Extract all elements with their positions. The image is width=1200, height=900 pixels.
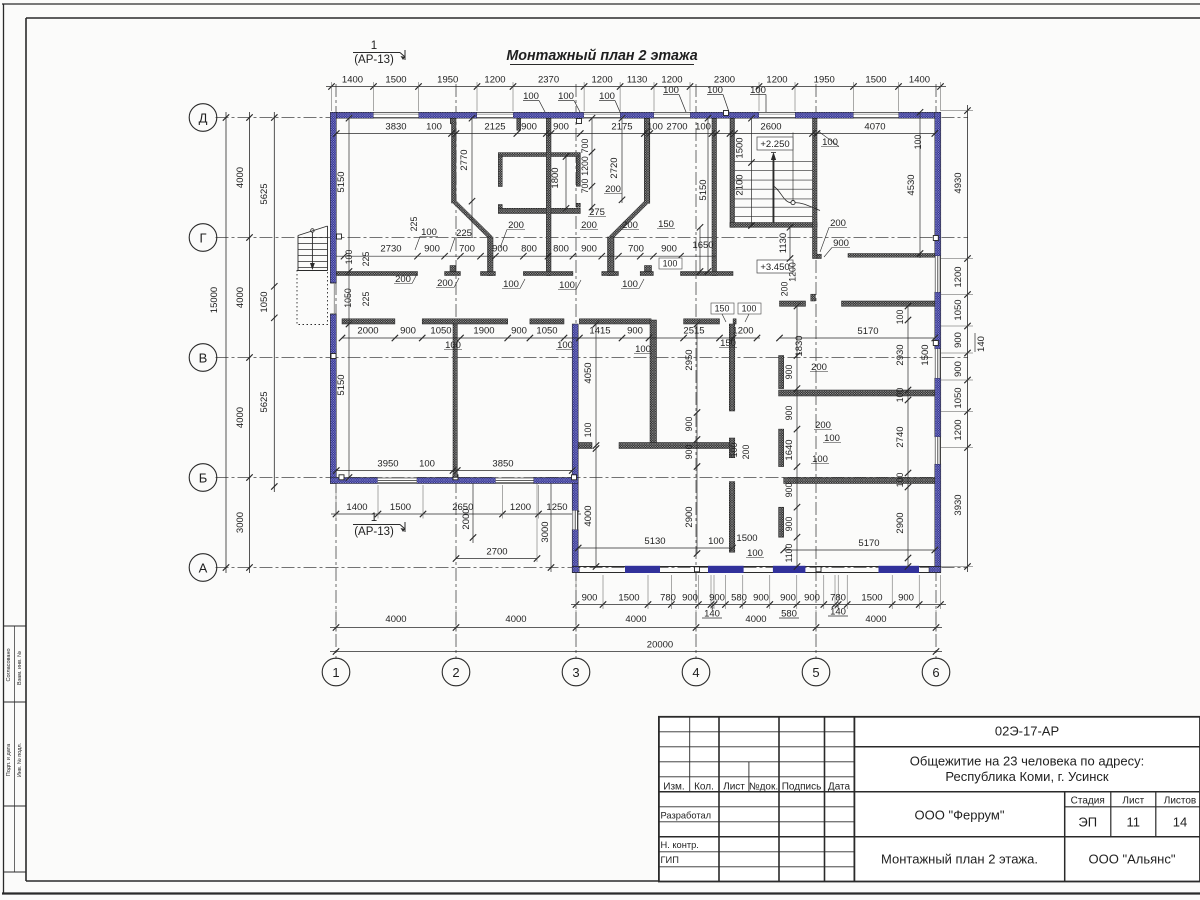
svg-text:3850: 3850 bbox=[492, 459, 513, 470]
svg-text:2125: 2125 bbox=[484, 122, 505, 133]
svg-text:900: 900 bbox=[627, 326, 643, 337]
svg-text:2720: 2720 bbox=[609, 157, 620, 178]
svg-text:2700: 2700 bbox=[666, 122, 687, 133]
svg-text:4000: 4000 bbox=[625, 614, 646, 625]
svg-text:1400: 1400 bbox=[346, 502, 367, 513]
svg-text:900: 900 bbox=[804, 593, 820, 604]
svg-text:2: 2 bbox=[452, 665, 459, 680]
svg-text:4050: 4050 bbox=[583, 362, 594, 383]
svg-text:20000: 20000 bbox=[647, 640, 673, 651]
svg-text:1800: 1800 bbox=[550, 167, 561, 188]
svg-text:100: 100 bbox=[647, 122, 663, 133]
svg-text:4000: 4000 bbox=[235, 167, 246, 188]
svg-text:15000: 15000 bbox=[209, 287, 220, 313]
svg-text:+3.450: +3.450 bbox=[760, 262, 789, 273]
svg-text:Инв. № подл.: Инв. № подл. bbox=[17, 742, 23, 777]
svg-text:2600: 2600 bbox=[760, 122, 781, 133]
svg-text:1500: 1500 bbox=[390, 502, 411, 513]
svg-text:+2.250: +2.250 bbox=[760, 139, 789, 150]
svg-text:1200: 1200 bbox=[484, 75, 505, 86]
svg-text:Общежитие на 23 человека по ад: Общежитие на 23 человека по адресу: bbox=[910, 754, 1144, 769]
svg-text:(АР-13): (АР-13) bbox=[354, 54, 394, 66]
svg-text:1500: 1500 bbox=[618, 593, 639, 604]
svg-text:4000: 4000 bbox=[235, 287, 246, 308]
svg-text:780: 780 bbox=[830, 593, 846, 604]
svg-text:900: 900 bbox=[582, 593, 598, 604]
svg-text:В: В bbox=[199, 350, 208, 365]
svg-text:Изм.: Изм. bbox=[663, 781, 684, 792]
svg-text:А: А bbox=[199, 560, 208, 575]
svg-text:2300: 2300 bbox=[714, 75, 735, 86]
svg-text:1500: 1500 bbox=[865, 75, 886, 86]
svg-text:ГИП: ГИП bbox=[661, 855, 679, 865]
svg-text:2100: 2100 bbox=[735, 174, 746, 195]
svg-text:1500: 1500 bbox=[861, 593, 882, 604]
svg-text:1050: 1050 bbox=[430, 326, 451, 337]
svg-text:700: 700 bbox=[580, 139, 590, 154]
svg-text:1200: 1200 bbox=[788, 262, 798, 282]
svg-text:700: 700 bbox=[628, 244, 644, 255]
svg-text:900: 900 bbox=[684, 445, 694, 460]
svg-text:900: 900 bbox=[684, 417, 694, 432]
svg-text:1200: 1200 bbox=[661, 75, 682, 86]
svg-text:ООО "Феррум": ООО "Феррум" bbox=[915, 808, 1005, 823]
svg-text:100: 100 bbox=[344, 250, 354, 265]
svg-text:3000: 3000 bbox=[540, 521, 551, 542]
svg-text:Листов: Листов bbox=[1164, 795, 1197, 806]
svg-text:2900: 2900 bbox=[895, 512, 906, 533]
svg-text:100: 100 bbox=[708, 536, 724, 547]
svg-text:№док.: №док. bbox=[749, 781, 778, 792]
svg-text:100: 100 bbox=[663, 259, 678, 269]
svg-text:100: 100 bbox=[419, 459, 435, 470]
svg-text:900: 900 bbox=[581, 244, 597, 255]
svg-text:1415: 1415 bbox=[589, 326, 610, 337]
svg-text:2740: 2740 bbox=[895, 426, 906, 447]
svg-text:Кол.: Кол. bbox=[694, 781, 714, 792]
svg-text:1950: 1950 bbox=[437, 75, 458, 86]
svg-text:5150: 5150 bbox=[336, 171, 347, 192]
svg-text:1830: 1830 bbox=[794, 335, 805, 356]
svg-text:780: 780 bbox=[660, 593, 676, 604]
svg-text:1500: 1500 bbox=[735, 137, 746, 158]
svg-text:900: 900 bbox=[784, 517, 794, 532]
svg-text:1050: 1050 bbox=[953, 387, 964, 408]
svg-text:225: 225 bbox=[409, 217, 419, 232]
svg-text:1250: 1250 bbox=[546, 502, 567, 513]
svg-text:100: 100 bbox=[895, 310, 905, 325]
svg-text:100: 100 bbox=[729, 443, 739, 458]
svg-text:150: 150 bbox=[715, 304, 730, 314]
svg-text:1: 1 bbox=[371, 40, 377, 52]
svg-text:5625: 5625 bbox=[259, 391, 270, 412]
svg-text:Монтажный план 2 этажа.: Монтажный план 2 этажа. bbox=[881, 852, 1038, 867]
svg-text:5150: 5150 bbox=[698, 179, 709, 200]
svg-text:900: 900 bbox=[553, 122, 569, 133]
svg-text:1400: 1400 bbox=[342, 75, 363, 86]
svg-text:225: 225 bbox=[361, 292, 371, 307]
svg-text:900: 900 bbox=[780, 593, 796, 604]
svg-text:900: 900 bbox=[492, 244, 508, 255]
svg-text:2700: 2700 bbox=[486, 547, 507, 558]
svg-text:200: 200 bbox=[780, 282, 790, 297]
svg-text:3000: 3000 bbox=[235, 512, 246, 533]
svg-text:3830: 3830 bbox=[385, 122, 406, 133]
svg-text:900: 900 bbox=[784, 365, 794, 380]
svg-text:Подп. и дата: Подп. и дата bbox=[6, 743, 12, 776]
svg-text:1130: 1130 bbox=[778, 233, 789, 253]
svg-text:3950: 3950 bbox=[377, 459, 398, 470]
svg-text:Подпись: Подпись bbox=[782, 781, 822, 792]
svg-text:1050: 1050 bbox=[259, 291, 270, 312]
svg-text:1950: 1950 bbox=[814, 75, 835, 86]
svg-text:Б: Б bbox=[199, 470, 208, 485]
svg-text:900: 900 bbox=[898, 593, 914, 604]
svg-text:900: 900 bbox=[784, 406, 794, 421]
svg-text:100: 100 bbox=[426, 122, 442, 133]
svg-text:900: 900 bbox=[400, 326, 416, 337]
svg-text:4000: 4000 bbox=[385, 614, 406, 625]
svg-text:4000: 4000 bbox=[745, 614, 766, 625]
svg-text:Лист: Лист bbox=[723, 781, 745, 792]
svg-text:900: 900 bbox=[682, 593, 698, 604]
svg-text:900: 900 bbox=[753, 593, 769, 604]
svg-text:4000: 4000 bbox=[505, 614, 526, 625]
svg-text:1200: 1200 bbox=[766, 75, 787, 86]
svg-text:Стадия: Стадия bbox=[1071, 795, 1105, 806]
svg-text:1050: 1050 bbox=[536, 326, 557, 337]
svg-text:Н. контр.: Н. контр. bbox=[661, 840, 699, 850]
svg-text:1200: 1200 bbox=[953, 266, 964, 287]
svg-text:4000: 4000 bbox=[583, 505, 594, 526]
svg-text:580: 580 bbox=[731, 593, 747, 604]
svg-text:2370: 2370 bbox=[538, 75, 559, 86]
svg-text:3: 3 bbox=[572, 665, 579, 680]
svg-text:2950: 2950 bbox=[684, 349, 695, 370]
svg-text:11: 11 bbox=[1127, 815, 1141, 830]
svg-text:3930: 3930 bbox=[953, 494, 964, 515]
svg-text:1100: 1100 bbox=[784, 543, 794, 562]
svg-text:1: 1 bbox=[332, 665, 339, 680]
svg-text:Лист: Лист bbox=[1122, 795, 1144, 806]
svg-text:1050: 1050 bbox=[953, 299, 964, 320]
svg-text:700: 700 bbox=[580, 179, 590, 194]
svg-text:5130: 5130 bbox=[644, 536, 665, 547]
svg-text:1200: 1200 bbox=[953, 419, 964, 440]
svg-text:Республика Коми, г. Усинск: Республика Коми, г. Усинск bbox=[945, 769, 1108, 784]
svg-text:4530: 4530 bbox=[906, 174, 917, 195]
svg-text:1640: 1640 bbox=[784, 439, 795, 460]
svg-text:900: 900 bbox=[521, 122, 537, 133]
svg-text:900: 900 bbox=[953, 361, 964, 377]
svg-text:4930: 4930 bbox=[953, 172, 964, 193]
svg-text:Д: Д bbox=[199, 110, 208, 125]
svg-text:1400: 1400 bbox=[909, 75, 930, 86]
svg-text:2000: 2000 bbox=[461, 508, 472, 529]
svg-text:Согласовано: Согласовано bbox=[6, 648, 12, 681]
svg-text:800: 800 bbox=[521, 244, 537, 255]
svg-text:2000: 2000 bbox=[357, 326, 378, 337]
svg-text:900: 900 bbox=[511, 326, 527, 337]
svg-text:900: 900 bbox=[424, 244, 440, 255]
svg-text:Монтажный план 2 этажа: Монтажный план 2 этажа bbox=[506, 48, 697, 64]
svg-text:100: 100 bbox=[913, 135, 923, 150]
svg-text:1500: 1500 bbox=[736, 533, 757, 544]
svg-text:225: 225 bbox=[361, 252, 371, 267]
svg-text:900: 900 bbox=[953, 332, 964, 348]
svg-text:ЭП: ЭП bbox=[1078, 815, 1097, 830]
svg-text:1200: 1200 bbox=[580, 156, 590, 176]
svg-text:2930: 2930 bbox=[895, 344, 906, 365]
svg-text:Взам. инв. №: Взам. инв. № bbox=[17, 651, 23, 685]
svg-text:1500: 1500 bbox=[385, 75, 406, 86]
svg-text:Г: Г bbox=[199, 230, 206, 245]
svg-text:900: 900 bbox=[661, 244, 677, 255]
svg-text:1200: 1200 bbox=[732, 326, 753, 337]
svg-text:1050: 1050 bbox=[343, 288, 353, 308]
svg-text:4070: 4070 bbox=[864, 122, 885, 133]
svg-text:ООО "Альянс": ООО "Альянс" bbox=[1089, 852, 1176, 867]
svg-text:5625: 5625 bbox=[259, 183, 270, 204]
svg-text:Дата: Дата bbox=[828, 781, 851, 792]
svg-text:Разработал: Разработал bbox=[661, 810, 712, 820]
svg-text:900: 900 bbox=[709, 593, 725, 604]
svg-text:5170: 5170 bbox=[858, 538, 879, 549]
svg-text:800: 800 bbox=[553, 244, 569, 255]
svg-text:4: 4 bbox=[692, 665, 699, 680]
svg-text:5170: 5170 bbox=[857, 326, 878, 337]
svg-text:1650: 1650 bbox=[692, 240, 713, 251]
svg-text:02Э-17-АР: 02Э-17-АР bbox=[995, 724, 1059, 739]
svg-text:700: 700 bbox=[459, 244, 475, 255]
svg-text:2900: 2900 bbox=[684, 506, 695, 527]
svg-text:14: 14 bbox=[1173, 815, 1187, 830]
svg-text:1130: 1130 bbox=[627, 75, 647, 86]
svg-text:200: 200 bbox=[741, 445, 751, 460]
svg-text:5150: 5150 bbox=[336, 374, 347, 395]
svg-text:100: 100 bbox=[895, 473, 905, 488]
svg-text:100: 100 bbox=[895, 388, 905, 403]
svg-text:2730: 2730 bbox=[380, 244, 401, 255]
svg-text:2770: 2770 bbox=[459, 149, 470, 170]
svg-text:100: 100 bbox=[583, 423, 593, 438]
svg-text:1200: 1200 bbox=[510, 502, 531, 513]
svg-text:1200: 1200 bbox=[592, 75, 613, 86]
svg-text:140: 140 bbox=[976, 336, 987, 352]
svg-text:100: 100 bbox=[742, 304, 757, 314]
svg-text:1900: 1900 bbox=[473, 326, 494, 337]
svg-text:1500: 1500 bbox=[920, 344, 931, 365]
svg-text:6: 6 bbox=[932, 665, 939, 680]
svg-text:100: 100 bbox=[695, 122, 711, 133]
svg-text:900: 900 bbox=[784, 483, 794, 498]
svg-text:(АР-13): (АР-13) bbox=[354, 526, 394, 538]
svg-text:4000: 4000 bbox=[235, 407, 246, 428]
svg-text:4000: 4000 bbox=[865, 614, 886, 625]
svg-text:5: 5 bbox=[812, 665, 819, 680]
